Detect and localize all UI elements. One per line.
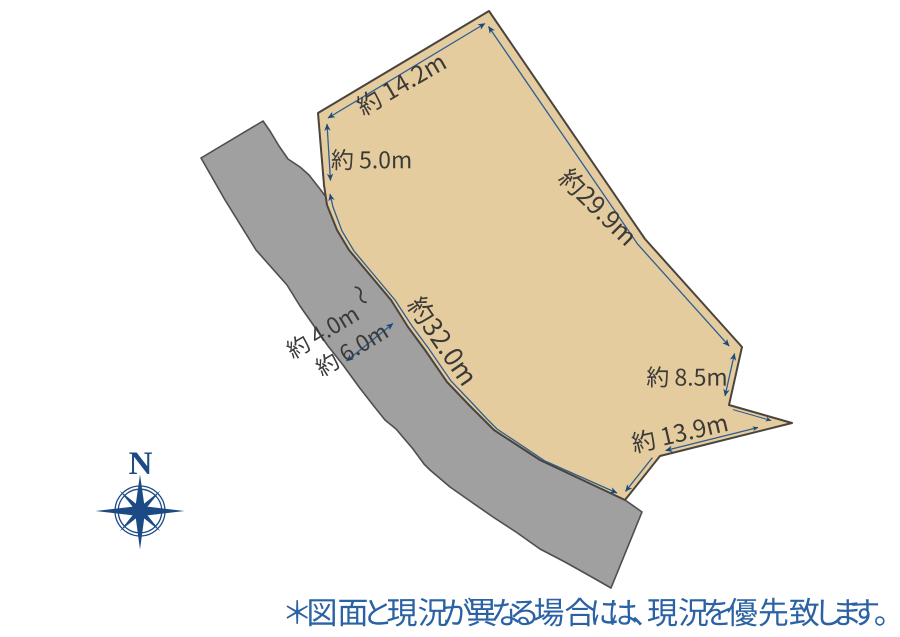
svg-text:N: N [129,446,153,482]
